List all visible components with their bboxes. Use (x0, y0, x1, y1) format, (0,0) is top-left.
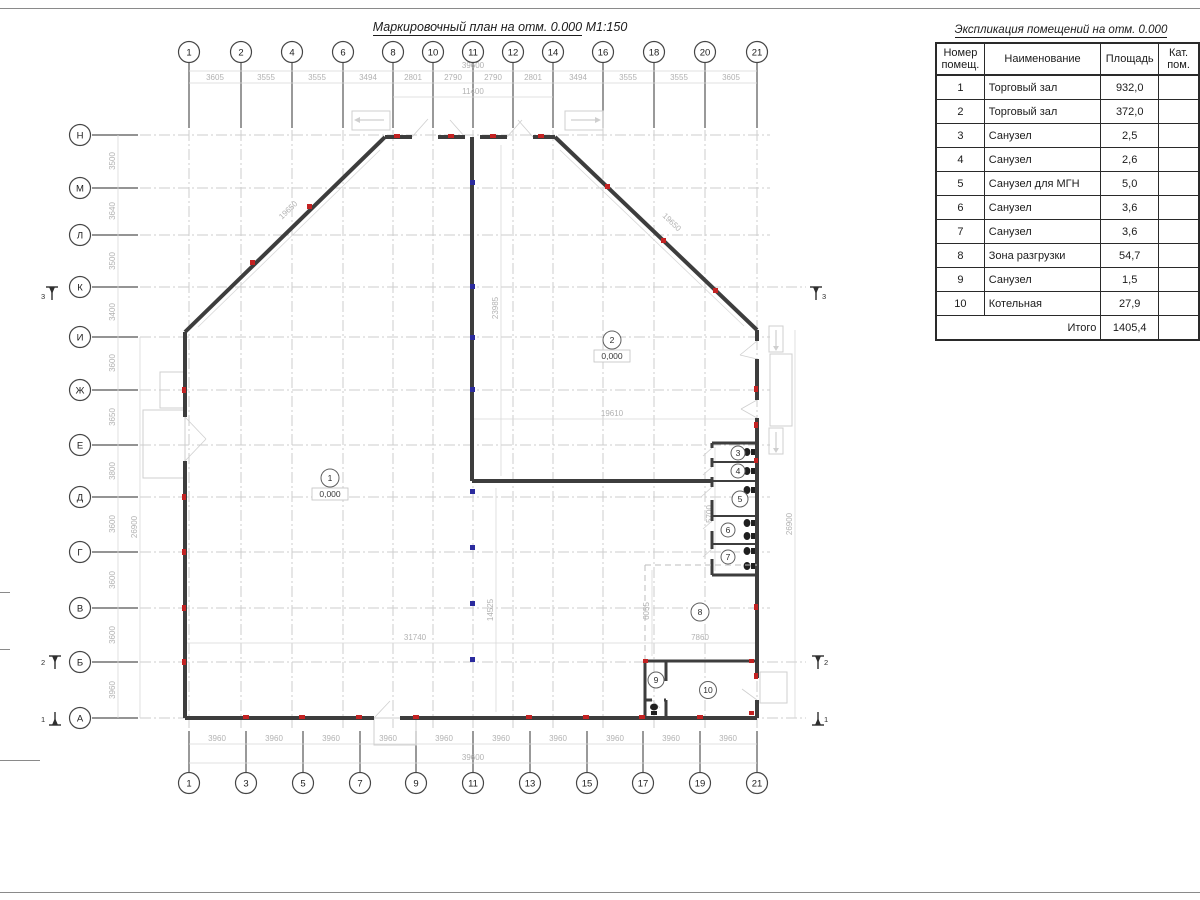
axis-label: 2 (238, 48, 243, 59)
room-elevation: 0,000 (319, 489, 341, 499)
cell-name: Санузел для МГН (984, 172, 1101, 196)
table-header-row: Номер помещ. Наименование Площадь Кат. п… (936, 43, 1199, 75)
toilet-icon (744, 547, 755, 555)
axis-bubbles-top: 1 2 4 6 8 10 11 12 14 16 18 20 21 (179, 42, 768, 63)
dim-top-seg: 2790 (444, 73, 462, 82)
dim-left-seg: 3600 (108, 515, 117, 533)
arrow-down-icon (773, 346, 779, 351)
cell-name: Санузел (984, 220, 1101, 244)
dim-bot-seg: 3960 (549, 734, 567, 743)
dim-top-seg: 3494 (569, 73, 587, 82)
room-schedule-title: Экспликация помещений на отм. 0.000 (933, 24, 1189, 36)
dim-diag-right: 19650 (661, 211, 684, 233)
cell-number: 5 (936, 172, 984, 196)
room-schedule-table: Номер помещ. Наименование Площадь Кат. п… (935, 42, 1200, 341)
room-number: 2 (610, 335, 615, 345)
toilet-icon (650, 704, 658, 715)
col-header-category: Кат. пом. (1159, 43, 1199, 75)
table-row: 4Санузел2,6 (936, 148, 1199, 172)
table-row: 6Санузел3,6 (936, 196, 1199, 220)
cell-number: 3 (936, 124, 984, 148)
dim-top-seg: 3555 (308, 73, 326, 82)
cell-area: 27,9 (1101, 292, 1159, 316)
dim-bot-seg: 3960 (435, 734, 453, 743)
room-number: 3 (736, 448, 741, 458)
porches-and-ramps (143, 111, 792, 745)
axis-label: 6 (340, 48, 345, 59)
axis-label: 15 (582, 779, 593, 790)
axis-label: Е (77, 441, 83, 452)
section-number: 3 (822, 292, 826, 301)
cell-name: Санузел (984, 148, 1101, 172)
axis-label: 1 (186, 48, 191, 59)
axis-label: 11 (468, 48, 478, 59)
axis-label: 4 (289, 48, 294, 59)
axis-label: К (77, 283, 83, 294)
table-row: 1Торговый зал932,0 (936, 75, 1199, 100)
cell-category (1159, 244, 1199, 268)
dimension-texts: 39600 3605 3555 3555 3494 2801 2790 2790… (108, 61, 794, 762)
dim-top-seg: 3555 (670, 73, 688, 82)
cell-number: 1 (936, 75, 984, 100)
cell-number: 8 (936, 244, 984, 268)
axis-label: Г (77, 548, 82, 559)
section-number: 2 (824, 658, 828, 667)
cell-category (1159, 292, 1199, 316)
axis-label: 11 (468, 779, 478, 790)
axis-label: В (77, 604, 83, 615)
axis-label: И (77, 333, 84, 344)
cell-number: 2 (936, 100, 984, 124)
cell-number: 6 (936, 196, 984, 220)
dim-bot-seg: 3960 (265, 734, 283, 743)
axis-label: 12 (508, 48, 519, 59)
cell-category (1159, 75, 1199, 100)
axis-label: Б (77, 658, 83, 669)
cell-area: 2,5 (1101, 124, 1159, 148)
axis-label: 20 (700, 48, 711, 59)
dim-top-seg: 3555 (257, 73, 275, 82)
axis-label: 9 (413, 779, 418, 790)
dim-wall-len: 23985 (491, 296, 500, 319)
axis-label: 8 (390, 48, 395, 59)
axis-label: Д (77, 493, 84, 504)
table-row: 2Торговый зал372,0 (936, 100, 1199, 124)
dim-left-seg: 3500 (108, 252, 117, 270)
dim-top-seg: 3494 (359, 73, 377, 82)
cell-area: 2,6 (1101, 148, 1159, 172)
axis-bubbles-left: Н М Л К И Ж Е Д Г В Б А (70, 125, 91, 729)
cell-area: 5,0 (1101, 172, 1159, 196)
dim-hall-height: 14525 (486, 598, 495, 621)
table-row: 5Санузел для МГН5,0 (936, 172, 1199, 196)
cell-number: 9 (936, 268, 984, 292)
axis-stems (92, 63, 757, 772)
dim-hall-width: 31740 (404, 633, 427, 642)
dim-left-overall: 26900 (130, 515, 139, 538)
cell-name: Котельная (984, 292, 1101, 316)
dim-left-seg: 3600 (108, 354, 117, 372)
table-row: 10Котельная27,9 (936, 292, 1199, 316)
dim-top-seg: 2801 (524, 73, 542, 82)
section-number: 1 (824, 715, 828, 724)
room-number: 4 (736, 466, 741, 476)
dim-diag-left: 19650 (277, 199, 300, 221)
axis-label: Н (77, 131, 84, 142)
axis-label: Л (77, 231, 83, 242)
cell-name: Торговый зал (984, 75, 1101, 100)
arrow-right-icon (595, 117, 601, 123)
cell-area: 3,6 (1101, 196, 1159, 220)
axis-label: Ж (76, 386, 85, 397)
dim-top-seg: 2801 (404, 73, 422, 82)
axis-label: 13 (525, 779, 536, 790)
dim-zone8-height: 6055 (642, 602, 651, 620)
room-elevation: 0,000 (601, 351, 623, 361)
total-value: 1405,4 (1101, 316, 1159, 341)
axis-label: 3 (243, 779, 248, 790)
dim-bot-seg: 3960 (208, 734, 226, 743)
axis-label: 7 (357, 779, 362, 790)
room-number: 1 (328, 473, 333, 483)
cell-name: Санузел (984, 124, 1101, 148)
axis-label: М (76, 184, 84, 195)
cell-area: 1,5 (1101, 268, 1159, 292)
axis-bubbles-bottom: 1 3 5 7 9 11 13 15 17 19 21 (179, 773, 768, 794)
axis-label: 5 (300, 779, 305, 790)
section-number: 1 (41, 715, 45, 724)
room-schedule-title-text: Экспликация помещений на отм. 0.000 (955, 24, 1168, 38)
axis-label: 1 (186, 779, 191, 790)
cell-category (1159, 124, 1199, 148)
dim-top-inner: 11400 (462, 87, 484, 96)
dim-bottom-overall: 39600 (462, 753, 485, 762)
drawing-sheet: Маркировочный план на отм. 0.000 М1:150 (0, 0, 1200, 900)
table-row: 8Зона разгрузки54,7 (936, 244, 1199, 268)
section-number: 3 (41, 292, 45, 301)
cell-category (1159, 100, 1199, 124)
toilet-icon (744, 519, 755, 527)
cell-area: 932,0 (1101, 75, 1159, 100)
toilet-icon (744, 562, 755, 570)
dim-top-seg: 3605 (722, 73, 740, 82)
arrow-left-icon (354, 117, 360, 123)
cell-area: 54,7 (1101, 244, 1159, 268)
dim-left-seg: 3640 (108, 202, 117, 220)
dim-bot-seg: 3960 (322, 734, 340, 743)
cell-name: Торговый зал (984, 100, 1101, 124)
dim-top-seg: 2790 (484, 73, 502, 82)
section-number: 2 (41, 658, 45, 667)
dim-room2-width: 19610 (601, 409, 624, 418)
room-number: 7 (726, 552, 731, 562)
dim-left-seg: 3600 (108, 571, 117, 589)
dim-bot-seg: 3960 (719, 734, 737, 743)
arrow-down-icon (773, 448, 779, 453)
dim-zone8-width: 7860 (691, 633, 709, 642)
cell-category (1159, 148, 1199, 172)
cell-category (1159, 196, 1199, 220)
cell-name: Зона разгрузки (984, 244, 1101, 268)
table-total-row: Итого 1405,4 (936, 316, 1199, 341)
axis-label: 14 (548, 48, 559, 59)
axis-label: 18 (649, 48, 660, 59)
room-number: 10 (703, 685, 713, 695)
col-header-number: Номер помещ. (936, 43, 984, 75)
dim-left-seg: 3800 (108, 462, 117, 480)
cell-category (1159, 268, 1199, 292)
dim-bot-seg: 3960 (379, 734, 397, 743)
col-header-area: Площадь (1101, 43, 1159, 75)
room-number: 9 (654, 675, 659, 685)
axis-label: 19 (695, 779, 706, 790)
axis-label: 21 (752, 48, 763, 59)
toilet-icon (744, 532, 755, 540)
dim-left-seg: 3960 (108, 681, 117, 699)
dim-left-seg: 3600 (108, 626, 117, 644)
cell-name: Санузел (984, 196, 1101, 220)
dim-left-seg: 3400 (108, 303, 117, 321)
dim-top-seg: 3605 (206, 73, 224, 82)
cell-category (1159, 316, 1199, 341)
dim-top-seg: 3555 (619, 73, 637, 82)
cell-number: 10 (936, 292, 984, 316)
total-label: Итого (936, 316, 1101, 341)
axis-label: 21 (752, 779, 763, 790)
dim-left-seg: 3650 (108, 408, 117, 426)
room-number: 8 (698, 607, 703, 617)
cell-name: Санузел (984, 268, 1101, 292)
dim-right-overall: 26900 (785, 512, 794, 535)
cell-category (1159, 172, 1199, 196)
cell-area: 3,6 (1101, 220, 1159, 244)
axis-label: 10 (428, 48, 439, 59)
dimension-lines (118, 71, 795, 763)
room-number: 5 (738, 494, 743, 504)
axis-label: А (77, 714, 84, 725)
table-row: 9Санузел1,5 (936, 268, 1199, 292)
cell-number: 7 (936, 220, 984, 244)
axis-label: 17 (638, 779, 649, 790)
cell-category (1159, 220, 1199, 244)
dim-bot-seg: 3960 (492, 734, 510, 743)
table-row: 3Санузел2,5 (936, 124, 1199, 148)
dim-bot-seg: 3960 (606, 734, 624, 743)
dim-bot-seg: 3960 (662, 734, 680, 743)
table-row: 7Санузел3,6 (936, 220, 1199, 244)
dim-left-seg: 3500 (108, 152, 117, 170)
axis-label: 16 (598, 48, 609, 59)
cell-number: 4 (936, 148, 984, 172)
room-number: 6 (726, 525, 731, 535)
cell-area: 372,0 (1101, 100, 1159, 124)
col-header-name: Наименование (984, 43, 1101, 75)
